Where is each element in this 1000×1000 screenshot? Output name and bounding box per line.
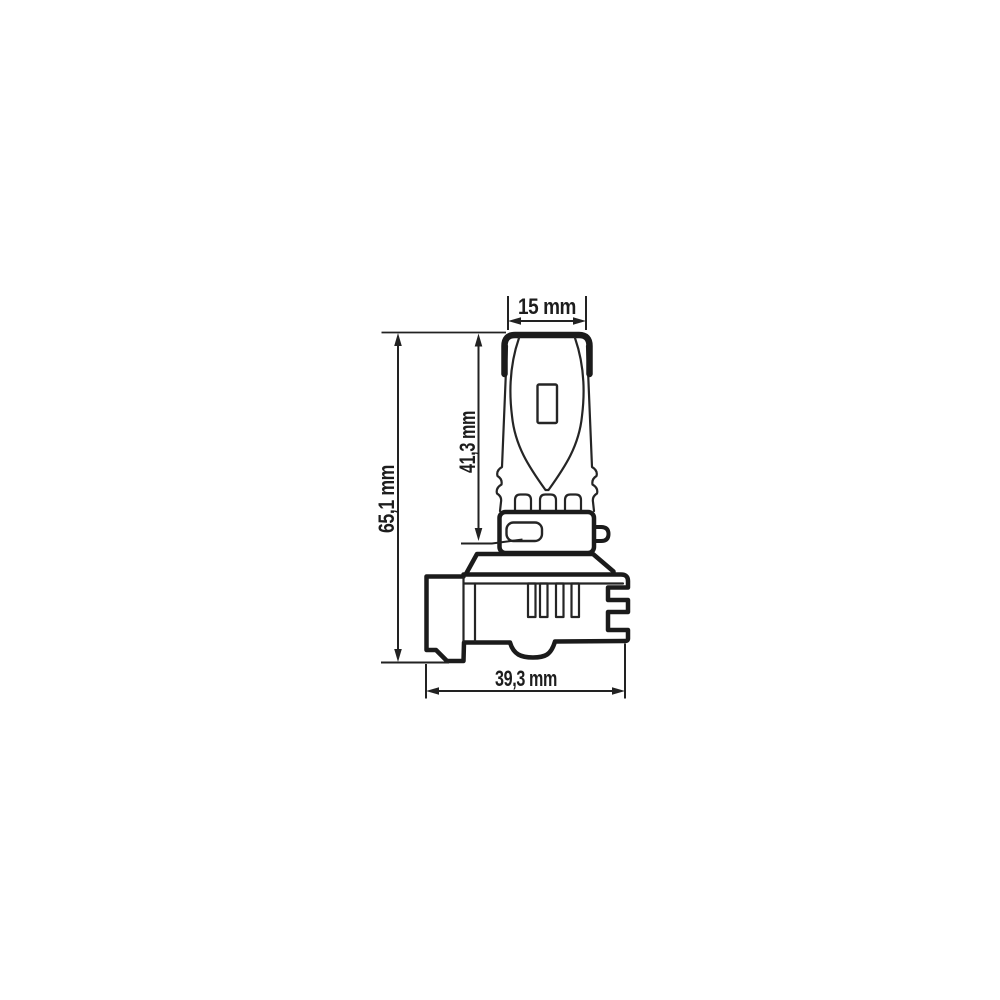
base-tab [565,495,581,512]
dimension-cap-width: 15 mm [508,294,586,330]
dimension-base-width: 39,3 mm [426,644,625,699]
bulb-base-tabs [515,495,581,512]
rib [540,584,548,618]
arrowhead-down [475,528,483,541]
arrowhead-down [394,649,402,662]
arrowhead-right [612,687,625,695]
dimension-label-overall-height: 65,1 mm [374,465,399,533]
bulb-technical-drawing: 15 mm 41,3 mm 65,1 mm 39,3 mm [0,0,1000,1000]
leader-line [461,540,523,544]
arrowhead-left [426,687,439,695]
rib [528,584,536,618]
led-holder-arch [510,338,583,490]
arrowhead-up [475,334,483,347]
rib [572,584,580,618]
socket-collar [500,512,595,553]
dimension-overall-height: 65,1 mm [374,333,506,663]
dimension-label-base-width: 39,3 mm [495,666,557,691]
dimension-label-cap-width: 15 mm [518,294,576,319]
dimension-label-upper-height: 41,3 mm [455,411,480,473]
led-chip [538,385,558,424]
technical-drawing-page: 15 mm 41,3 mm 65,1 mm 39,3 mm [0,0,1000,1000]
bulb-drawing [427,335,629,661]
rib [556,584,564,618]
base-tab [540,495,556,512]
arrowhead-up [394,333,402,346]
collar-slot [507,523,543,542]
base-tab [515,495,531,512]
mounting-flange [467,554,614,574]
body-ribs [528,584,579,618]
